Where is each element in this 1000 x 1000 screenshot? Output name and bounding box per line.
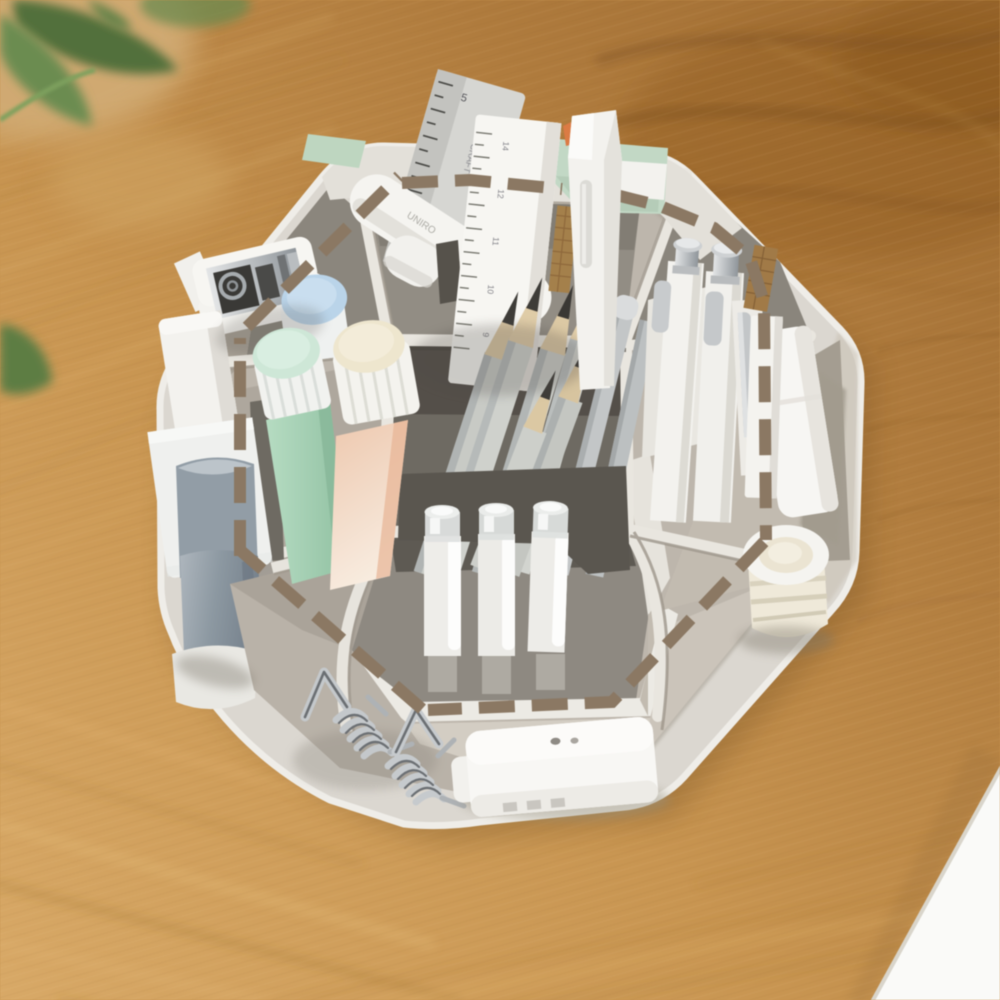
svg-text:10: 10 [485, 284, 496, 295]
svg-text:11: 11 [490, 236, 501, 246]
svg-text:14: 14 [500, 141, 511, 152]
svg-text:12: 12 [495, 189, 506, 200]
